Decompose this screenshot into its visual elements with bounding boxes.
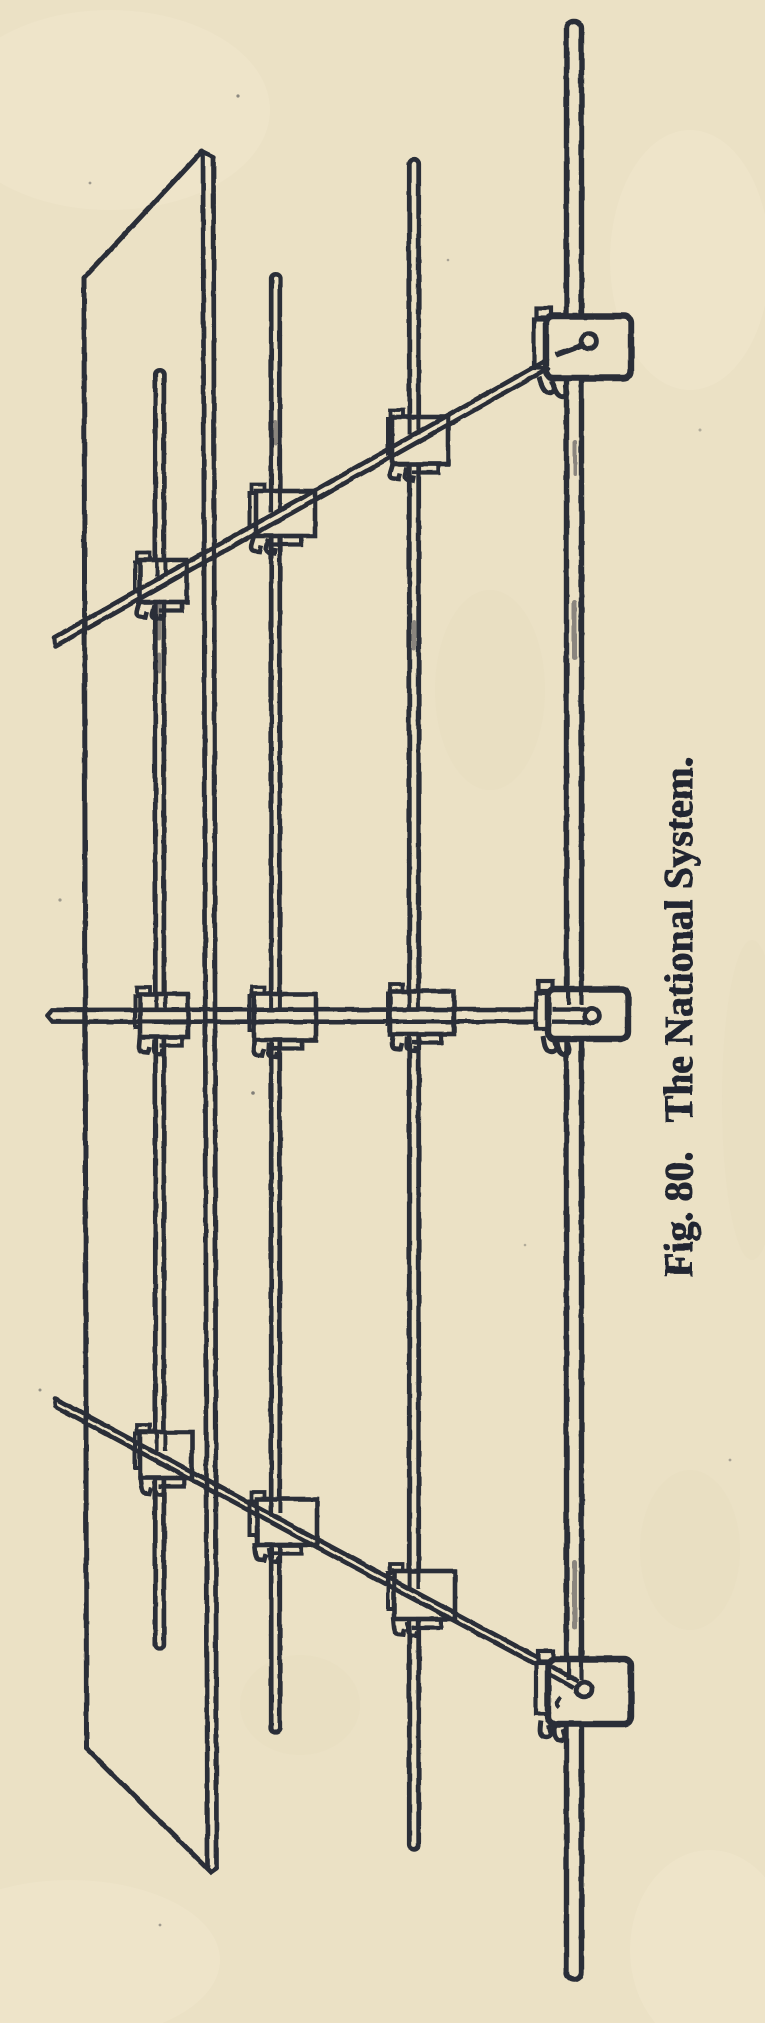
svg-text:Fig. 80. The National System: Fig. 80. The National System. [656, 757, 701, 1277]
